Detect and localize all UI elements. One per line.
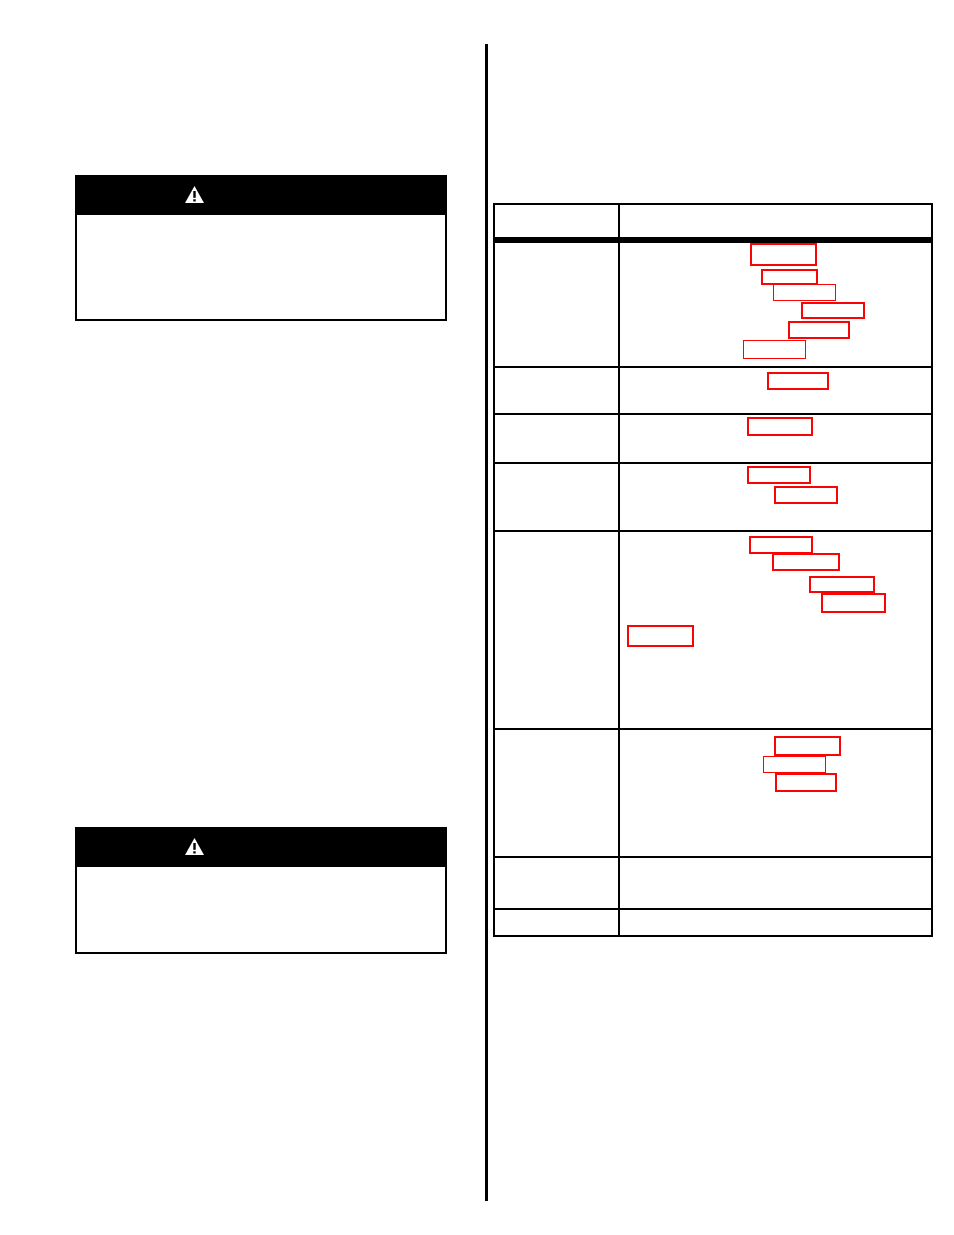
warning-banner [75, 827, 447, 865]
redaction-box [747, 417, 813, 436]
warning-text-box [75, 213, 447, 321]
redaction-box [809, 576, 875, 593]
redaction-box [821, 593, 886, 613]
warning-triangle-icon [185, 838, 204, 855]
redaction-box [749, 536, 813, 554]
table-header-rule [495, 237, 931, 243]
warning-triangle-icon [185, 186, 204, 203]
table-row-divider [495, 413, 931, 415]
redaction-box [775, 773, 837, 792]
warning-banner [75, 175, 447, 213]
redaction-box [763, 756, 826, 773]
data-table [493, 203, 933, 937]
redaction-box [750, 243, 817, 266]
redaction-box [788, 321, 850, 339]
redaction-box [767, 372, 829, 390]
column-divider-line [485, 44, 488, 1201]
redaction-box [627, 625, 694, 647]
redaction-box [772, 553, 840, 571]
table-row-divider [495, 856, 931, 858]
table-row-divider [495, 908, 931, 910]
table-row-divider [495, 462, 931, 464]
redaction-box [747, 466, 811, 484]
table-row-divider [495, 366, 931, 368]
warning-text-box [75, 865, 447, 954]
redaction-box [774, 736, 841, 756]
table-column-divider [618, 205, 620, 935]
redaction-box [743, 340, 806, 359]
redaction-box [761, 269, 818, 285]
table-row-divider [495, 728, 931, 730]
redaction-box [773, 284, 836, 301]
redaction-box [801, 302, 865, 319]
document-page [0, 0, 954, 1235]
redaction-box [774, 486, 838, 504]
table-row-divider [495, 530, 931, 532]
